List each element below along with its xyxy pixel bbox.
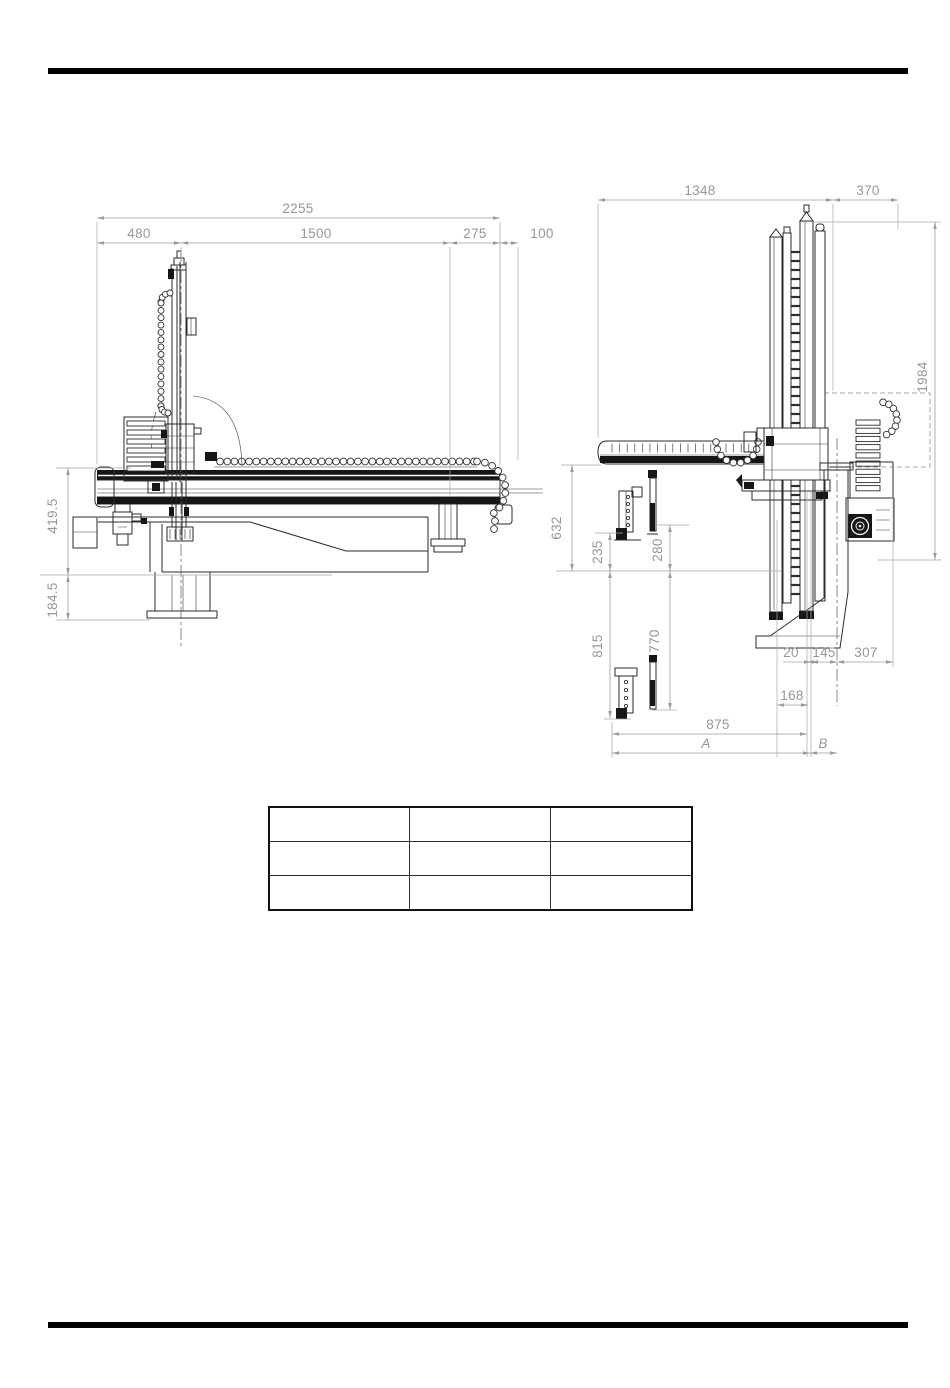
dimensions-front-view: 1348 370 1984 632 235 280 815 770 20 145…	[549, 183, 941, 758]
dim-total-height: 1984	[915, 361, 930, 392]
dim-875: 875	[706, 717, 729, 732]
table-row	[269, 807, 692, 842]
side-view-press-cylinder	[167, 482, 193, 541]
side-view-regulator	[113, 503, 147, 545]
spec-table	[268, 806, 693, 911]
table-cell	[551, 807, 693, 842]
dim-stroke-b: B	[818, 736, 827, 751]
dim-seg-front: 275	[463, 226, 486, 241]
table-cell	[410, 876, 551, 911]
table-cell	[410, 842, 551, 876]
dim-stroke-a: A	[700, 736, 710, 751]
side-view	[73, 250, 543, 646]
dim-145: 145	[812, 645, 835, 660]
dimensions-side-view: 2255 480 1500 275 100 419.5 184.5	[40, 201, 554, 620]
table-cell	[551, 842, 693, 876]
table-cell	[269, 876, 410, 911]
dim-seg-stroke: 1500	[300, 226, 331, 241]
dim-seg-end: 100	[530, 226, 553, 241]
side-view-arm-chain	[158, 290, 173, 416]
dim-seg-back: 480	[127, 226, 150, 241]
dim-307: 307	[854, 645, 877, 660]
drawing-sheet: 2255 480 1500 275 100 419.5 184.5	[0, 0, 950, 1388]
table-row	[269, 842, 692, 876]
side-view-vertical-arm	[151, 251, 242, 482]
dim-beam-height: 419.5	[45, 498, 60, 533]
dim-upper-grip-outer: 280	[650, 538, 665, 561]
dim-total-width: 2255	[282, 201, 313, 216]
front-view-drive-unit	[830, 399, 900, 498]
side-view-beam	[95, 467, 543, 524]
dim-beam-clearance: 632	[549, 516, 564, 539]
table-cell	[410, 807, 551, 842]
technical-drawing: 2255 480 1500 275 100 419.5 184.5	[0, 0, 950, 1388]
table-row	[269, 876, 692, 911]
dim-upper-grip-inner: 235	[590, 540, 605, 563]
side-view-support-column	[431, 504, 465, 552]
side-view-cable-chain	[217, 458, 509, 532]
front-view-control-box	[846, 498, 894, 541]
dim-lower-grip-outer: 770	[647, 629, 662, 652]
table-cell	[269, 842, 410, 876]
dim-traverse-span: 1348	[684, 183, 715, 198]
dim-lower-grip-inner: 815	[590, 634, 605, 657]
side-view-base	[73, 517, 428, 618]
front-view-grippers	[614, 470, 658, 719]
dim-side-offset: 370	[856, 183, 879, 198]
dim-base-height: 184.5	[45, 582, 60, 617]
table-cell	[269, 807, 410, 842]
dim-168: 168	[780, 688, 803, 703]
side-view-drive-motor	[124, 417, 168, 493]
table-cell	[551, 876, 693, 911]
dim-20: 20	[783, 645, 799, 660]
